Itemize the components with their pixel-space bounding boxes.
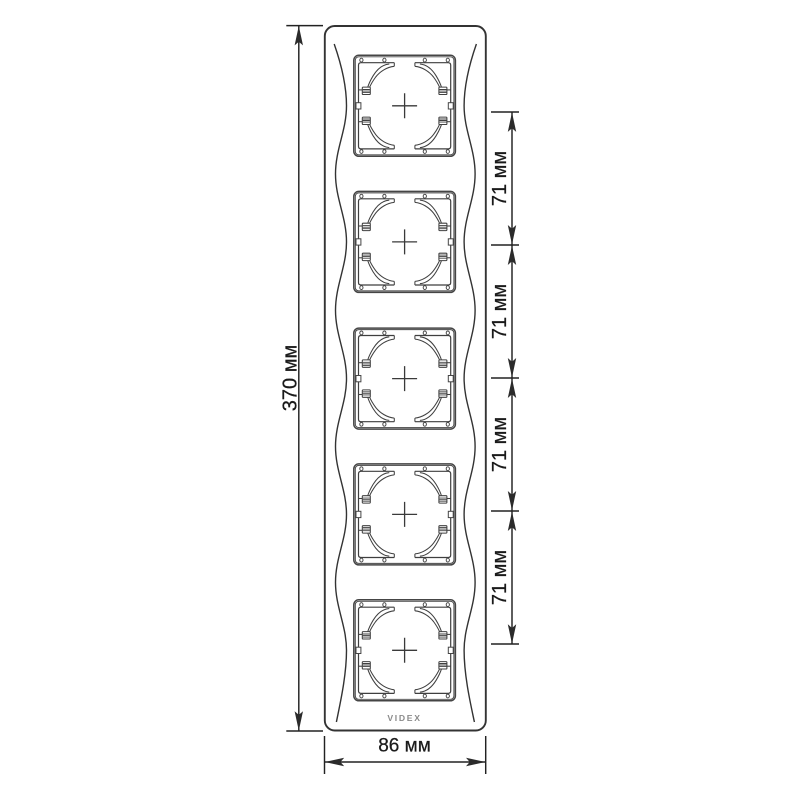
svg-text:VIDEX: VIDEX <box>387 713 421 723</box>
svg-text:86 мм: 86 мм <box>378 735 431 756</box>
svg-text:71 мм: 71 мм <box>489 151 511 206</box>
svg-text:71 мм: 71 мм <box>489 550 511 605</box>
svg-text:370 мм: 370 мм <box>280 345 302 411</box>
svg-text:71 мм: 71 мм <box>489 284 511 339</box>
svg-text:71 мм: 71 мм <box>489 417 511 472</box>
